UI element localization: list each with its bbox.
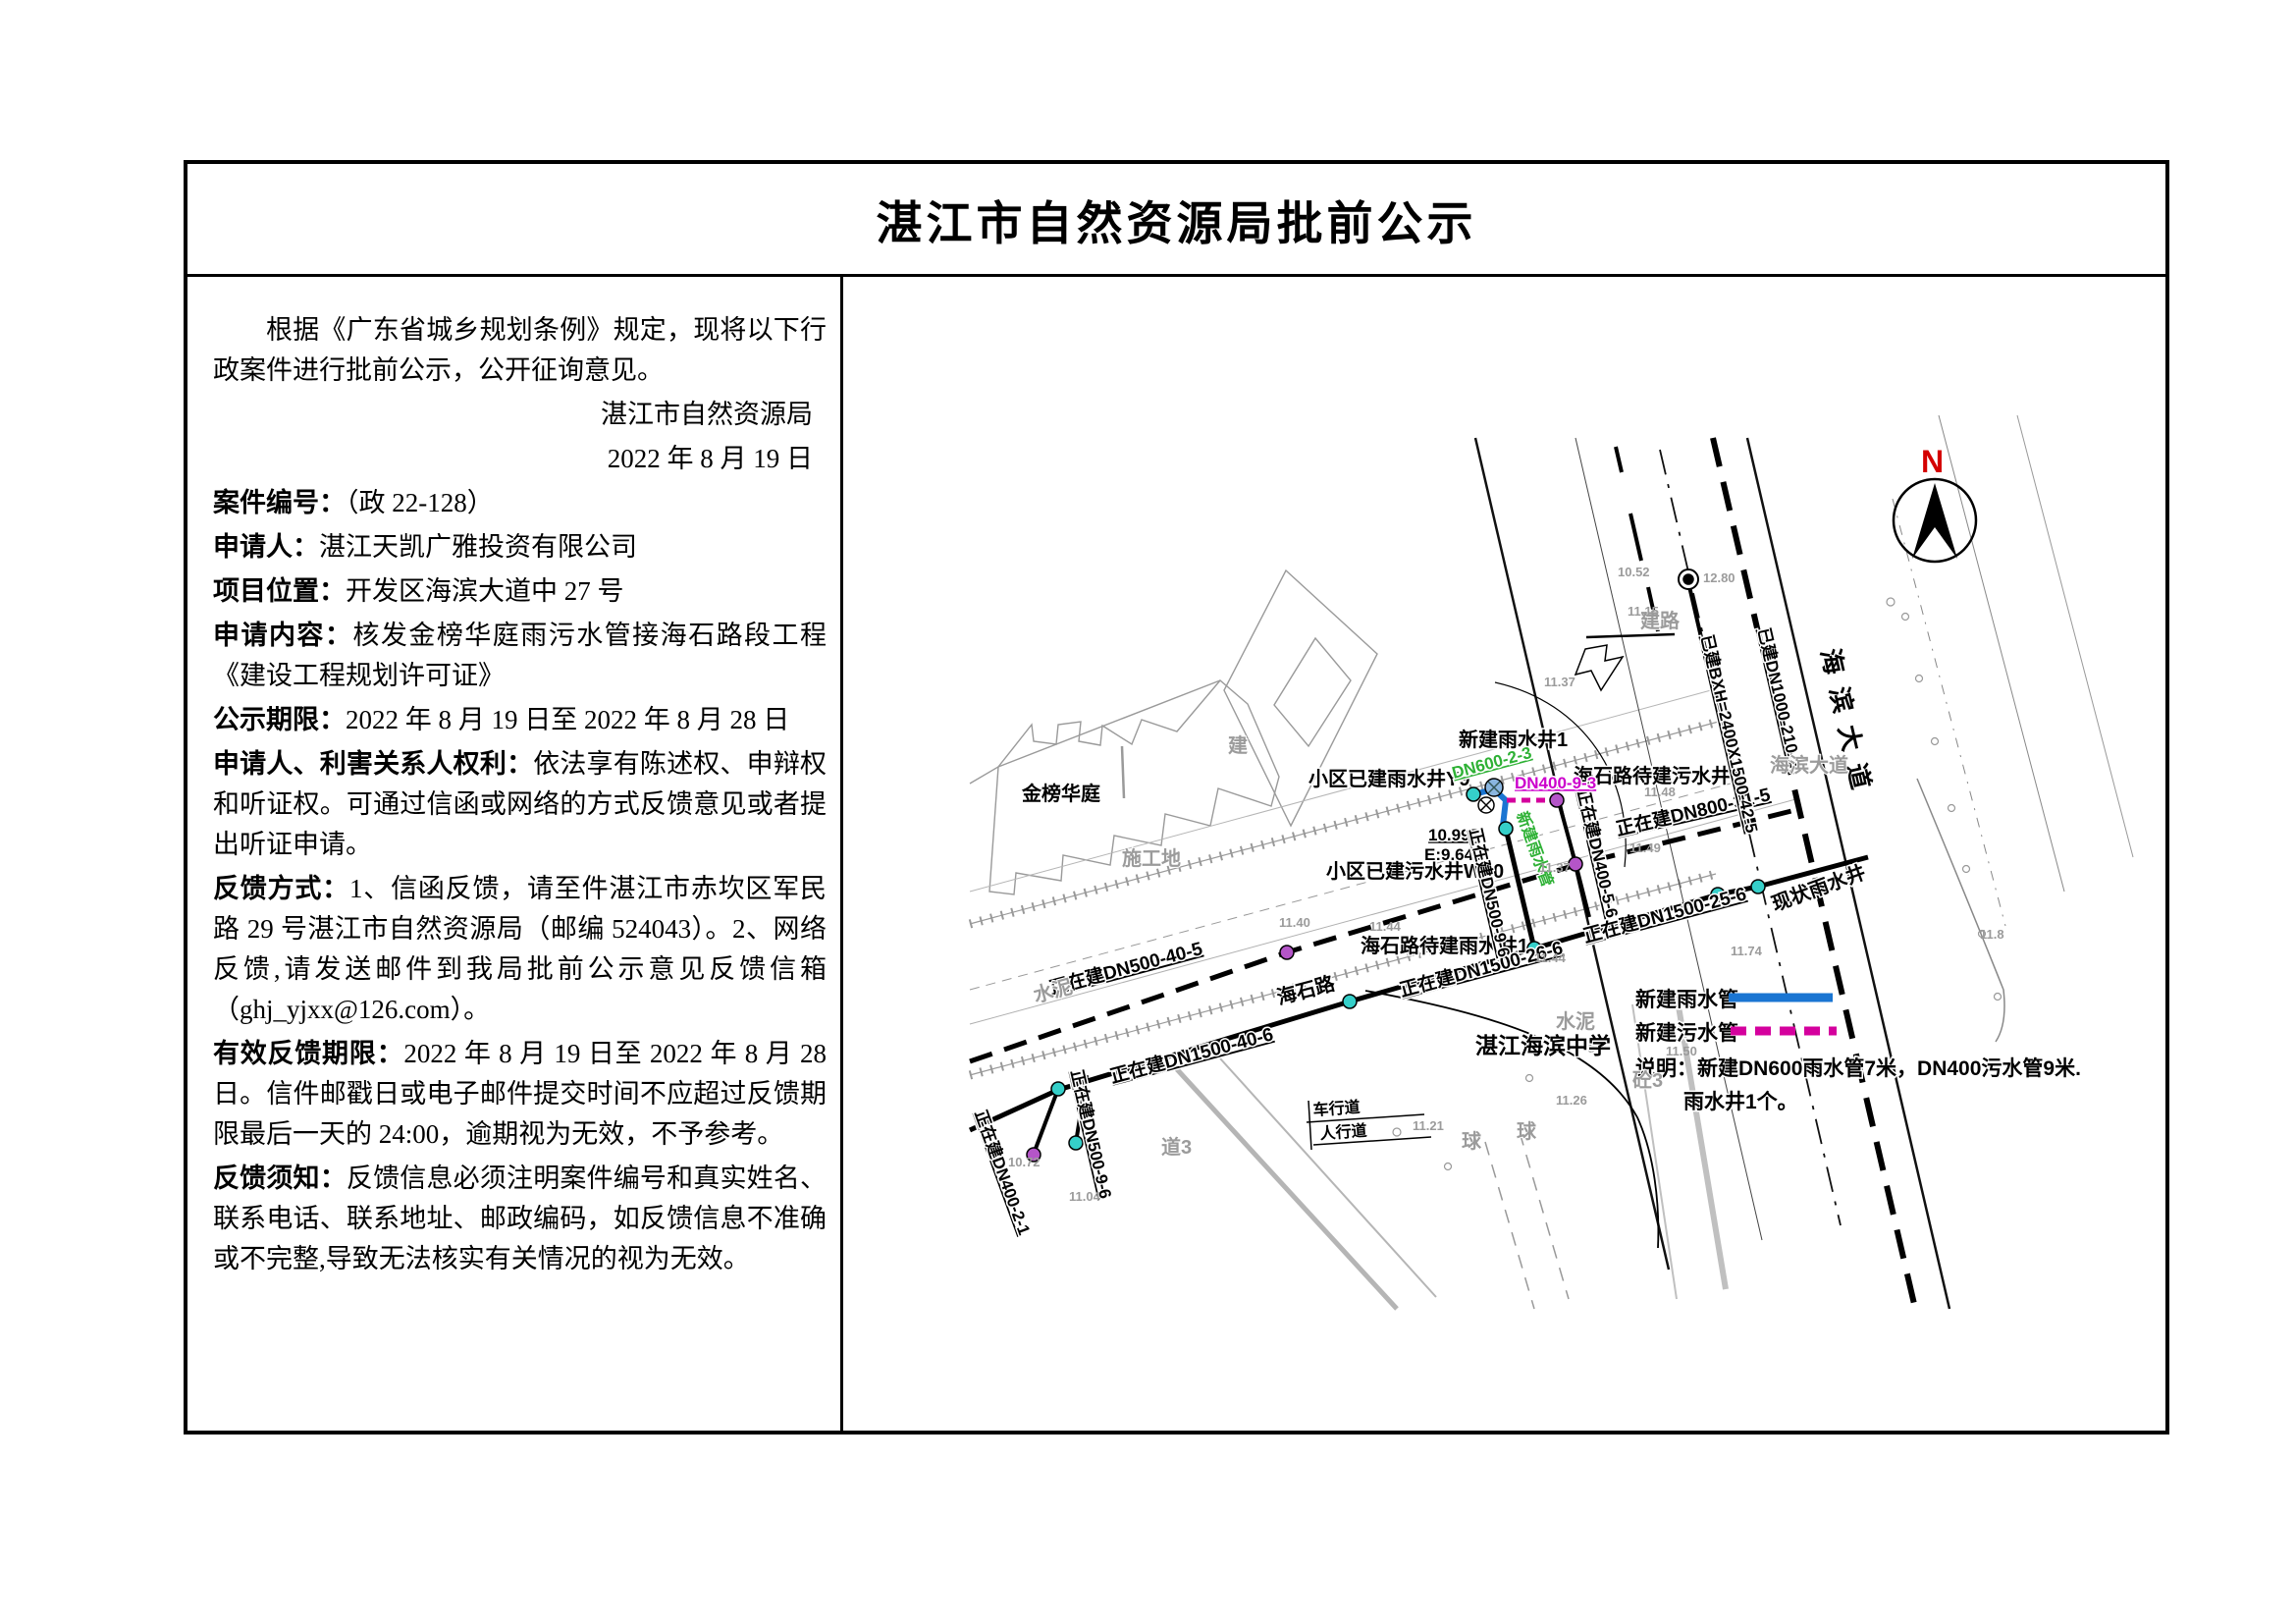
elevation-value: 11.50	[1666, 1044, 1697, 1058]
item-feedback-method: 反馈方式：1、信函反馈，请至件湛江市赤坎区军民路 29 号湛江市自然资源局（邮编…	[213, 869, 827, 1030]
elevation-value: 11.48	[1644, 785, 1676, 799]
elevation-value: 11.37	[1539, 860, 1571, 875]
signature: 湛江市自然资源局	[213, 395, 827, 435]
page-title: 湛江市自然资源局批前公示	[877, 186, 1477, 253]
elevation-value: 11.21	[1413, 1118, 1444, 1133]
document-page: 湛江市自然资源局批前公示 根据《广东省城乡规划条例》规定，现将以下行政案件进行批…	[0, 0, 2296, 1624]
label-haishi-road: 海石路	[1274, 971, 1338, 1009]
north-compass: N	[1894, 444, 1976, 562]
north-arrow-icon	[1912, 483, 1957, 559]
item-feedback-deadline: 有效反馈期限：2022 年 8 月 19 日至 2022 年 8 月 28 日。…	[213, 1034, 827, 1155]
label-haibin-avenue-gray: 海滨大道	[1770, 753, 1848, 777]
label-haibin-school: 湛江海滨中学	[1475, 1033, 1611, 1058]
item-rights: 申请人、利害关系人权利：依法享有陈述权、申辩权和听证权。可通过信函或网络的方式反…	[213, 744, 827, 865]
notice-sheet: 湛江市自然资源局批前公示 根据《广东省城乡规划条例》规定，现将以下行政案件进行批…	[184, 160, 2169, 1435]
label-court-2: 球	[1517, 1120, 1537, 1143]
item-application-content: 申请内容：核发金榜华庭雨污水管接海石路段工程《建设工程规划许可证》	[213, 616, 827, 696]
label-cement-2: 水泥	[1556, 1010, 1595, 1033]
site-plan-svg: N 新建雨水管 新建污水管 说明：新建DN600雨水管7米，DN400污水管9米…	[843, 277, 2172, 1437]
label-pipe-dn400-2-1: 正在建DN400-2-1	[971, 1108, 1035, 1238]
map-labels: 新建雨水井1小区已建雨水井Y9海石路待建污水井1小区已建污水井W1010.997…	[971, 565, 2003, 1237]
elevation-value: 10.52	[1618, 565, 1650, 579]
item-feedback-notes: 反馈须知：反馈信息必须注明案件编号和真实姓名、联系电话、联系地址、邮政编码，如反…	[213, 1159, 827, 1279]
elevation-value: 11.37	[1544, 675, 1575, 689]
notice-text-panel: 根据《广东省城乡规划条例》规定，现将以下行政案件进行批前公示，公开征询意见。 湛…	[187, 277, 843, 1431]
label-concrete-3: 砼3	[1632, 1068, 1663, 1092]
intro-paragraph: 根据《广东省城乡规划条例》规定，现将以下行政案件进行批前公示，公开征询意见。	[213, 310, 827, 391]
elevation-value: 11.40	[1279, 915, 1310, 930]
elevation-value: 11.74	[1731, 944, 1763, 958]
label-sidewalk: 人行道	[1319, 1121, 1367, 1143]
body-row: 根据《广东省城乡规划条例》规定，现将以下行政案件进行批前公示，公开征询意见。 湛…	[187, 277, 2165, 1431]
north-label: N	[1921, 444, 1944, 479]
label-construction-site: 施工地	[1122, 846, 1181, 870]
label-building: 建	[1228, 733, 1248, 757]
map-legend: 新建雨水管 新建污水管 说明：新建DN600雨水管7米，DN400污水管9米. …	[1635, 988, 2081, 1113]
elevation-value: 11.04	[1069, 1189, 1101, 1204]
crosshair-well-icon	[1478, 797, 1494, 813]
label-pipe-dn500-9-6-b: 正在建DN500-9-6	[1067, 1067, 1116, 1200]
legend-note-1: 说明：新建DN600雨水管7米，DN400污水管9米.	[1635, 1056, 2081, 1080]
label-haibin-avenue: 海滨大道	[1815, 646, 1879, 806]
elevation-value: 10.72	[1008, 1155, 1041, 1169]
item-project-location: 项目位置：开发区海滨大道中 27 号	[213, 571, 827, 612]
legend-note-2: 雨水井1个。	[1683, 1091, 1798, 1113]
hatched-well-icon	[1485, 779, 1503, 796]
elevation-value: 11.49	[1629, 840, 1661, 855]
legend-rain-label: 新建雨水管	[1635, 988, 1738, 1011]
elevation-value: 11.44	[1369, 919, 1402, 934]
legend-sewage-label: 新建污水管	[1635, 1021, 1738, 1045]
elevation-value: 11.8	[1980, 927, 2004, 942]
elevation-value: 11.44	[1534, 950, 1567, 965]
label-cement-1: 水泥	[1031, 975, 1075, 1007]
title-bar: 湛江市自然资源局批前公示	[187, 164, 2165, 277]
hollow-arrow-icon	[1575, 645, 1623, 690]
elevation-value: 11.15	[1628, 604, 1659, 619]
label-pipe-dn400-9-3: DN400-9-3	[1515, 774, 1596, 792]
label-existing-rain-well-y9: 小区已建雨水井Y9	[1308, 767, 1469, 790]
elevation-value: 12.80	[1703, 570, 1735, 585]
item-case-number: 案件编号：（政 22-128）	[213, 483, 827, 523]
label-jinbang-huating: 金榜华庭	[1021, 782, 1100, 805]
notice-date: 2022 年 8 月 19 日	[213, 439, 827, 479]
elevation-value: 11.26	[1556, 1093, 1587, 1108]
label-carriageway: 车行道	[1312, 1098, 1361, 1119]
site-plan-map: N 新建雨水管 新建污水管 说明：新建DN600雨水管7米，DN400污水管9米…	[843, 277, 2165, 1431]
building-outlines	[970, 570, 1377, 894]
item-applicant: 申请人：湛江天凯广雅投资有限公司	[213, 527, 827, 568]
label-pipe-dn1500-40-6: 正在建DN1500-40-6	[1107, 1022, 1275, 1087]
item-publicity-period: 公示期限：2022 年 8 月 19 日至 2022 年 8 月 28 日	[213, 700, 827, 740]
label-pipe-dn1000-210-2: 已建DN1000-210-2	[1754, 625, 1805, 769]
label-court-1: 球	[1462, 1130, 1482, 1153]
label-pipe-dn400-5-6: 正在建DN400-5-6	[1574, 786, 1623, 919]
label-road-3: 道3	[1161, 1135, 1192, 1159]
